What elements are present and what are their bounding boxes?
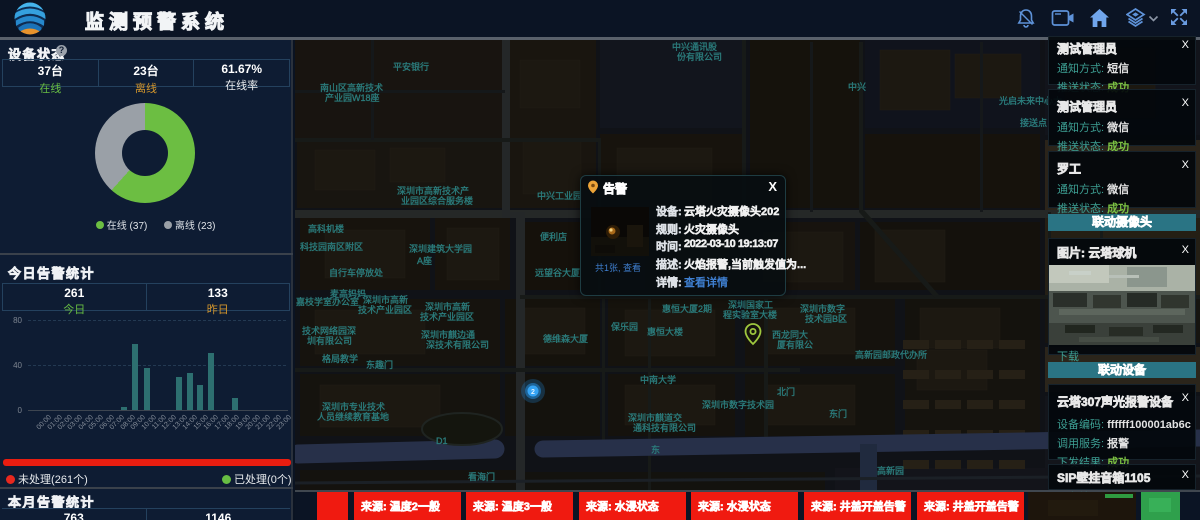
svg-text:深圳市高新技术产: 深圳市高新技术产 [397,185,469,196]
svg-text:深圳市高新: 深圳市高新 [363,294,408,305]
svg-text:深圳市数字: 深圳市数字 [800,303,845,314]
svg-text:高新园: 高新园 [877,465,904,476]
svg-text:自行车停放处: 自行车停放处 [329,267,383,278]
svg-text:北门: 北门 [777,386,795,397]
svg-text:高科机楼: 高科机楼 [308,223,344,234]
svg-text:保乐园: 保乐园 [611,321,638,332]
svg-text:看海门: 看海门 [468,471,495,482]
svg-text:厦有限公: 厦有限公 [777,339,813,350]
svg-text:中兴工业园: 中兴工业园 [537,190,582,201]
svg-text:嘉枝学室办公室: 嘉枝学室办公室 [296,296,359,307]
svg-text:中兴通讯股: 中兴通讯股 [672,41,717,52]
svg-text:技术网络园深: 技术网络园深 [302,325,356,336]
svg-text:中兴: 中兴 [848,81,866,92]
svg-text:技术产业园区: 技术产业园区 [420,311,474,322]
svg-text:程实验室大楼: 程实验室大楼 [723,309,777,320]
svg-text:深圳建筑大学园: 深圳建筑大学园 [409,243,472,254]
svg-text:东门: 东门 [829,408,847,419]
svg-text:西龙同大: 西龙同大 [772,329,808,340]
svg-text:德维森大厦: 德维森大厦 [543,333,588,344]
svg-text:D1: D1 [436,436,448,446]
svg-text:技术园B区: 技术园B区 [805,313,847,324]
svg-text:份有限公司: 份有限公司 [677,51,722,62]
svg-text:高新园邮政代办所: 高新园邮政代办所 [855,349,927,360]
svg-text:南山区高新技术: 南山区高新技术 [320,82,383,93]
svg-text:深技术有限公司: 深技术有限公司 [426,339,489,350]
svg-text:技术产业园区: 技术产业园区 [358,304,412,315]
svg-text:通科技有限公司: 通科技有限公司 [633,422,696,433]
svg-text:深圳市高新: 深圳市高新 [425,301,470,312]
svg-text:深圳市麒道交: 深圳市麒道交 [628,412,682,423]
svg-text:深圳市专业技术: 深圳市专业技术 [322,401,385,412]
svg-text:A座: A座 [417,255,432,266]
svg-text:圳有限公司: 圳有限公司 [307,335,352,346]
svg-text:人员继续教育基地: 人员继续教育基地 [317,411,389,422]
svg-text:惠恒大厦2期: 惠恒大厦2期 [662,303,712,314]
svg-text:平安银行: 平安银行 [393,61,429,72]
svg-text:深圳市麒边通: 深圳市麒边通 [421,329,475,340]
svg-text:产业园W18座: 产业园W18座 [325,92,380,103]
svg-text:深圳市数字技术园: 深圳市数字技术园 [702,399,774,410]
svg-text:惠恒大楼: 惠恒大楼 [647,326,683,337]
svg-text:中南大学: 中南大学 [640,374,676,385]
svg-text:科技园南区附区: 科技园南区附区 [300,241,363,252]
svg-text:深圳国家工: 深圳国家工 [728,299,773,310]
svg-text:便利店: 便利店 [540,231,567,242]
svg-text:2: 2 [531,389,535,396]
svg-text:格局教学: 格局教学 [322,353,358,364]
svg-text:远望谷大厦: 远望谷大厦 [535,267,580,278]
svg-text:接送点: 接送点 [1020,117,1047,128]
svg-text:东: 东 [651,444,660,455]
svg-text:业园区综合服务楼: 业园区综合服务楼 [401,195,473,206]
svg-text:东趣门: 东趣门 [366,359,393,370]
